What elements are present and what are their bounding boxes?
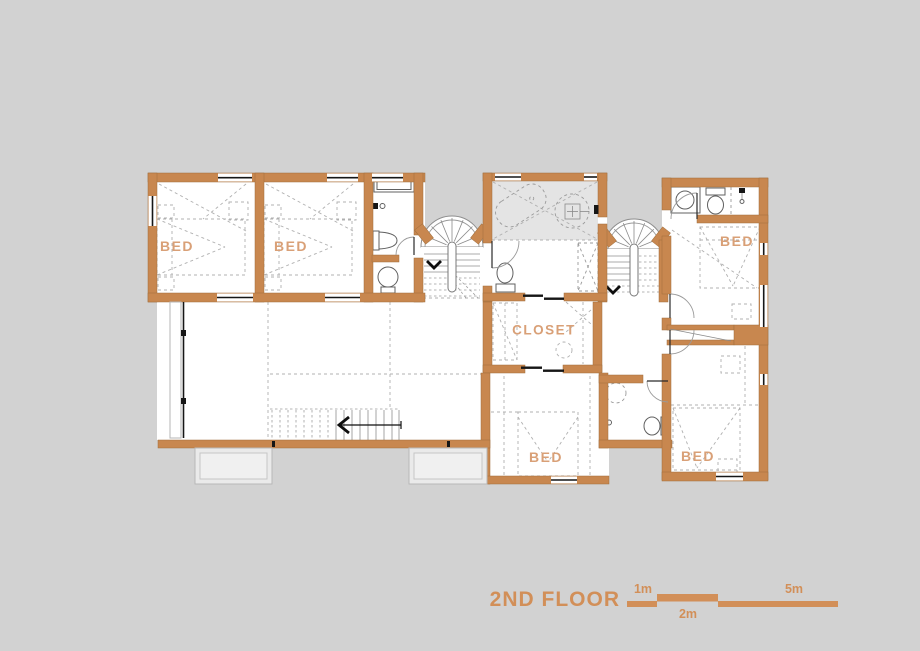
hall-glass-wall xyxy=(170,302,186,438)
floor-title: 2ND FLOOR xyxy=(460,588,620,612)
room-label-bed-top-right: BED xyxy=(720,233,754,249)
scale-label-1m: 1m xyxy=(634,582,652,596)
floor-plan-page: BED BED BED BED BED CLOSET 2ND FLOOR 1m … xyxy=(0,0,920,651)
floor-plan-drawing xyxy=(0,0,920,651)
room-label-bed-bottom-middle: BED xyxy=(529,449,563,465)
scale-label-2m: 2m xyxy=(679,607,697,621)
scale-bar xyxy=(627,594,838,607)
room-label-closet: CLOSET xyxy=(512,323,576,338)
bathroom-wet-area xyxy=(492,181,598,240)
balconies xyxy=(195,448,487,484)
room-label-bed-bottom-right: BED xyxy=(681,448,715,464)
room-label-bed-top-middle: BED xyxy=(274,238,308,254)
scale-label-5m: 5m xyxy=(785,582,803,596)
room-label-bed-top-left: BED xyxy=(160,238,194,254)
